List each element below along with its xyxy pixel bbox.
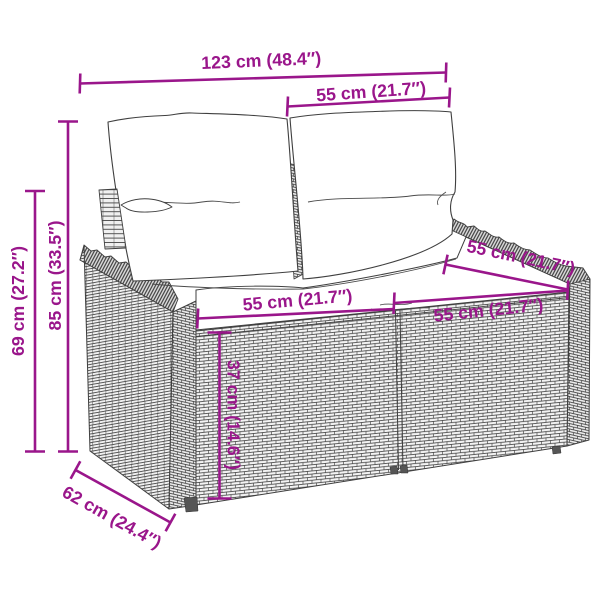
svg-text:37 cm (14.6″): 37 cm (14.6″) [224,360,244,470]
svg-text:85 cm (33.5″): 85 cm (33.5″) [45,220,65,330]
svg-text:69 cm (27.2″): 69 cm (27.2″) [8,246,28,356]
